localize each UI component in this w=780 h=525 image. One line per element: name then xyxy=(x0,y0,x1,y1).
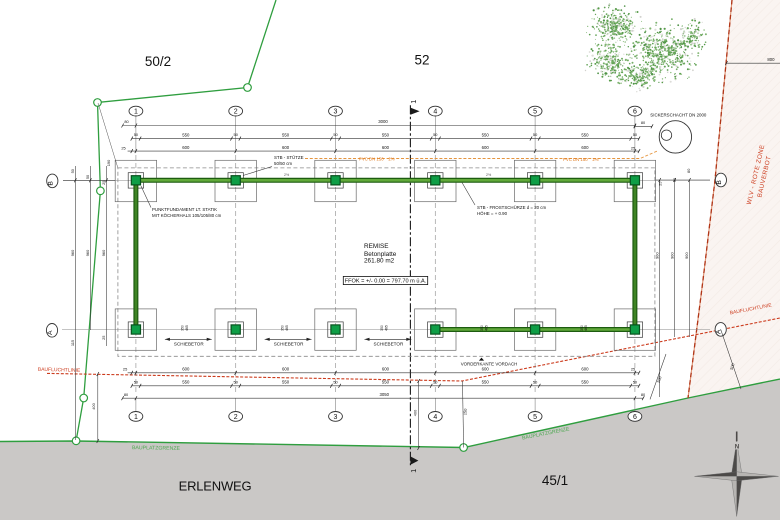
svg-text:900: 900 xyxy=(654,252,659,259)
svg-text:50/2: 50/2 xyxy=(145,54,171,69)
svg-text:2: 2 xyxy=(234,109,238,116)
svg-text:4: 4 xyxy=(433,109,437,116)
svg-text:1: 1 xyxy=(409,469,418,473)
svg-text:115: 115 xyxy=(70,340,75,346)
svg-text:550: 550 xyxy=(482,379,490,384)
svg-text:600: 600 xyxy=(581,145,589,150)
svg-text:600: 600 xyxy=(482,366,490,371)
svg-text:25: 25 xyxy=(101,181,106,185)
svg-text:STB - STÜTZE: STB - STÜTZE xyxy=(274,155,304,160)
svg-text:SICKERSCHACHT DN 2000: SICKERSCHACHT DN 2000 xyxy=(650,113,707,118)
svg-text:45/1: 45/1 xyxy=(542,473,568,488)
svg-text:465: 465 xyxy=(285,325,289,331)
svg-text:2%: 2% xyxy=(486,173,492,177)
svg-text:ERLENWEG: ERLENWEG xyxy=(179,479,252,494)
svg-text:5: 5 xyxy=(533,414,537,421)
svg-text:BAUPLATZGRENZE: BAUPLATZGRENZE xyxy=(132,445,181,452)
svg-text:6: 6 xyxy=(633,414,637,421)
svg-text:400: 400 xyxy=(412,409,417,416)
svg-text:5: 5 xyxy=(533,109,537,116)
svg-text:PUNKTFUNDAMENT LT. STATIK: PUNKTFUNDAMENT LT. STATIK xyxy=(152,207,217,212)
svg-text:600: 600 xyxy=(482,145,490,150)
svg-text:600: 600 xyxy=(182,145,190,150)
svg-text:MIT KÖCHERHALS 105/105/80 cm: MIT KÖCHERHALS 105/105/80 cm xyxy=(152,213,222,218)
svg-text:2: 2 xyxy=(234,414,238,421)
svg-text:800: 800 xyxy=(767,57,775,62)
svg-text:25: 25 xyxy=(123,367,127,372)
svg-text:3: 3 xyxy=(334,109,338,116)
svg-text:350: 350 xyxy=(280,325,284,331)
svg-text:25: 25 xyxy=(101,336,106,340)
svg-text:600: 600 xyxy=(182,366,190,371)
svg-text:REMISE: REMISE xyxy=(364,243,389,250)
svg-text:PVC DN 150 2%: PVC DN 150 2% xyxy=(359,156,395,161)
svg-text:400: 400 xyxy=(91,402,96,409)
svg-text:350: 350 xyxy=(480,325,484,331)
svg-text:SCHIEBETOR: SCHIEBETOR xyxy=(274,342,304,347)
svg-text:900: 900 xyxy=(684,252,689,259)
svg-text:960: 960 xyxy=(85,249,90,256)
svg-text:25: 25 xyxy=(121,145,125,150)
svg-text:STB - FROSTSCHÜRZE d = 20 cm: STB - FROSTSCHÜRZE d = 20 cm xyxy=(477,205,547,210)
svg-text:465: 465 xyxy=(484,325,488,331)
svg-text:600: 600 xyxy=(282,145,290,150)
svg-text:2%: 2% xyxy=(284,173,290,177)
svg-text:960: 960 xyxy=(101,249,106,256)
svg-text:25: 25 xyxy=(631,367,635,372)
svg-text:1: 1 xyxy=(409,100,418,104)
svg-text:600: 600 xyxy=(382,145,390,150)
svg-text:FFOK = +/- 0.00 = 797.70 m ü.A: FFOK = +/- 0.00 = 797.70 m ü.A. xyxy=(345,279,427,285)
svg-text:190: 190 xyxy=(106,159,111,166)
svg-text:465: 465 xyxy=(185,325,189,331)
svg-text:BAUFLUCHTLINIE: BAUFLUCHTLINIE xyxy=(38,367,81,374)
svg-text:550: 550 xyxy=(182,379,190,384)
svg-text:HÖHE = + 0.90: HÖHE = + 0.90 xyxy=(477,211,508,216)
svg-text:550: 550 xyxy=(182,132,190,137)
svg-text:600: 600 xyxy=(282,366,290,371)
svg-text:3000: 3000 xyxy=(378,119,388,124)
svg-text:50/50 cm: 50/50 cm xyxy=(274,161,292,166)
svg-text:B: B xyxy=(47,181,54,186)
svg-text:550: 550 xyxy=(382,379,390,384)
svg-text:900: 900 xyxy=(669,252,674,259)
svg-text:550: 550 xyxy=(581,132,589,137)
svg-text:SCHIEBETOR: SCHIEBETOR xyxy=(374,342,404,347)
svg-text:52: 52 xyxy=(414,53,429,68)
svg-text:3050: 3050 xyxy=(380,392,390,397)
svg-text:465: 465 xyxy=(385,325,389,331)
svg-text:1: 1 xyxy=(134,414,138,421)
svg-text:1: 1 xyxy=(134,109,138,116)
svg-text:550: 550 xyxy=(581,379,589,384)
svg-text:550: 550 xyxy=(282,379,290,384)
svg-text:4: 4 xyxy=(433,414,437,421)
svg-text:A: A xyxy=(47,330,54,335)
svg-text:PVC DN 150 2%: PVC DN 150 2% xyxy=(563,157,599,162)
svg-text:350: 350 xyxy=(380,325,384,331)
svg-text:350: 350 xyxy=(580,325,584,331)
svg-text:465: 465 xyxy=(584,325,588,331)
svg-text:25: 25 xyxy=(631,145,635,150)
svg-text:600: 600 xyxy=(581,366,589,371)
svg-text:B: B xyxy=(716,180,723,185)
svg-text:960: 960 xyxy=(70,249,75,256)
svg-text:600: 600 xyxy=(382,366,390,371)
svg-text:25: 25 xyxy=(657,182,662,186)
svg-text:N: N xyxy=(735,444,740,451)
svg-text:SCHIEBETOR: SCHIEBETOR xyxy=(174,342,204,347)
svg-text:VORDERKANTE VORDACH: VORDERKANTE VORDACH xyxy=(461,361,518,366)
svg-text:6: 6 xyxy=(633,109,637,116)
svg-text:3: 3 xyxy=(334,414,338,421)
svg-text:550: 550 xyxy=(282,132,290,137)
svg-text:550: 550 xyxy=(482,132,490,137)
svg-text:550: 550 xyxy=(382,132,390,137)
svg-text:350: 350 xyxy=(181,325,185,331)
svg-text:261.80 m2: 261.80 m2 xyxy=(364,258,395,265)
